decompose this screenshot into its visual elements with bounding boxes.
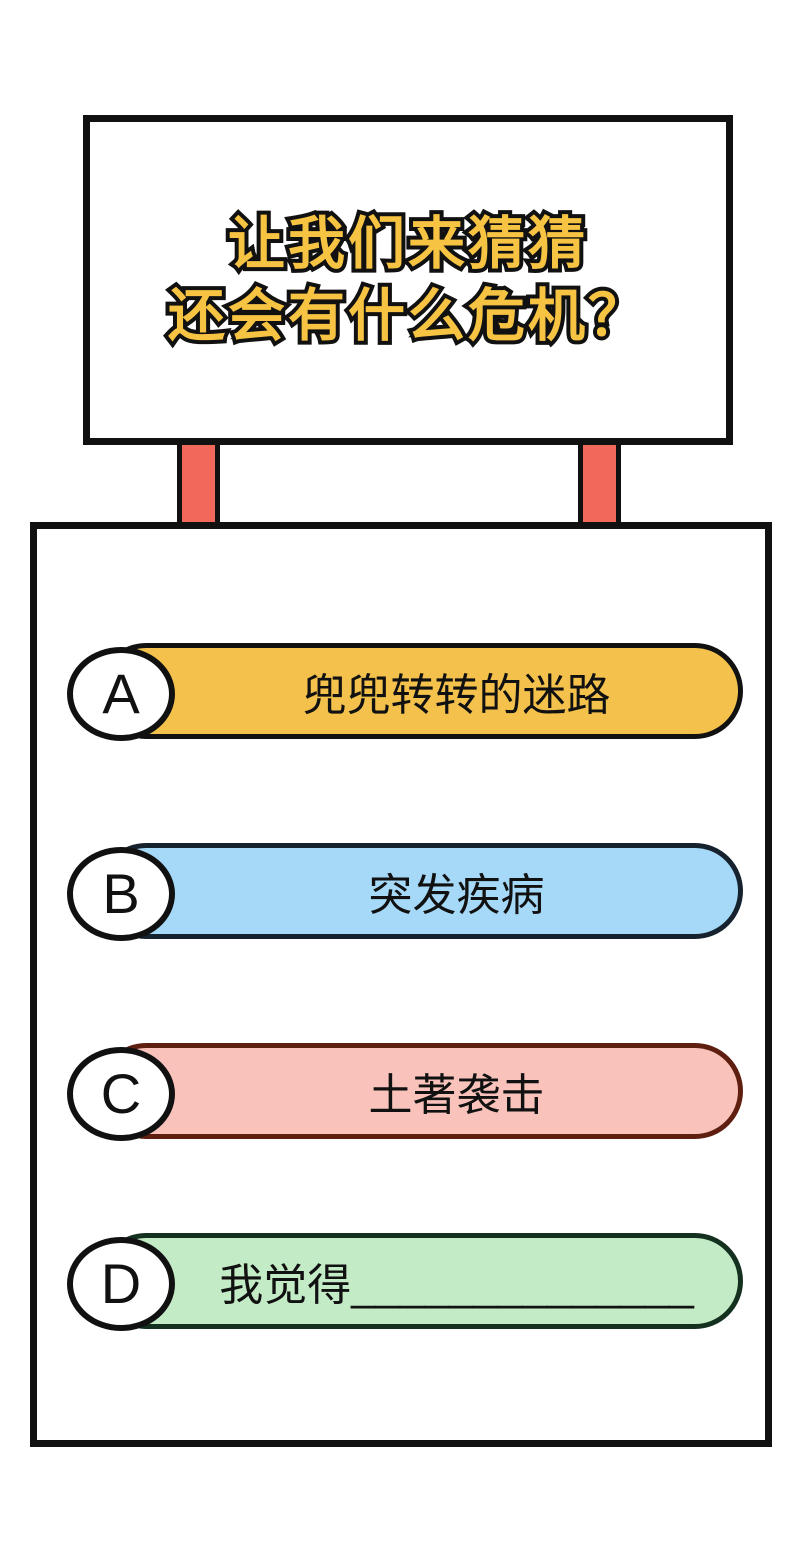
option-c[interactable]: 土著袭击 C	[98, 1043, 743, 1139]
option-a-badge: A	[67, 647, 175, 741]
quiz-page: 让我们来猜猜 还会有什么危机？ 兜兜转转的迷路 A 突发疾病 B 土著袭击 C …	[0, 0, 800, 1563]
option-a-label: 兜兜转转的迷路	[175, 648, 738, 734]
sign-post-left	[177, 441, 220, 525]
option-b-letter: B	[102, 866, 139, 922]
option-d-label: 我觉得______________	[175, 1238, 738, 1324]
option-d-letter: D	[101, 1256, 141, 1312]
question-sign: 让我们来猜猜 还会有什么危机？	[83, 115, 733, 445]
question-title-line1: 让我们来猜猜	[228, 208, 588, 280]
sign-post-right	[578, 441, 621, 525]
option-a[interactable]: 兜兜转转的迷路 A	[98, 643, 743, 739]
option-c-badge: C	[67, 1047, 175, 1141]
option-d-badge: D	[67, 1237, 175, 1331]
option-d[interactable]: 我觉得______________ D	[98, 1233, 743, 1329]
option-b-label: 突发疾病	[175, 848, 738, 934]
option-b-badge: B	[67, 847, 175, 941]
option-c-letter: C	[101, 1066, 141, 1122]
question-title-line2: 还会有什么危机？	[168, 280, 648, 352]
option-a-letter: A	[102, 666, 139, 722]
option-c-label: 土著袭击	[175, 1048, 738, 1134]
option-b[interactable]: 突发疾病 B	[98, 843, 743, 939]
